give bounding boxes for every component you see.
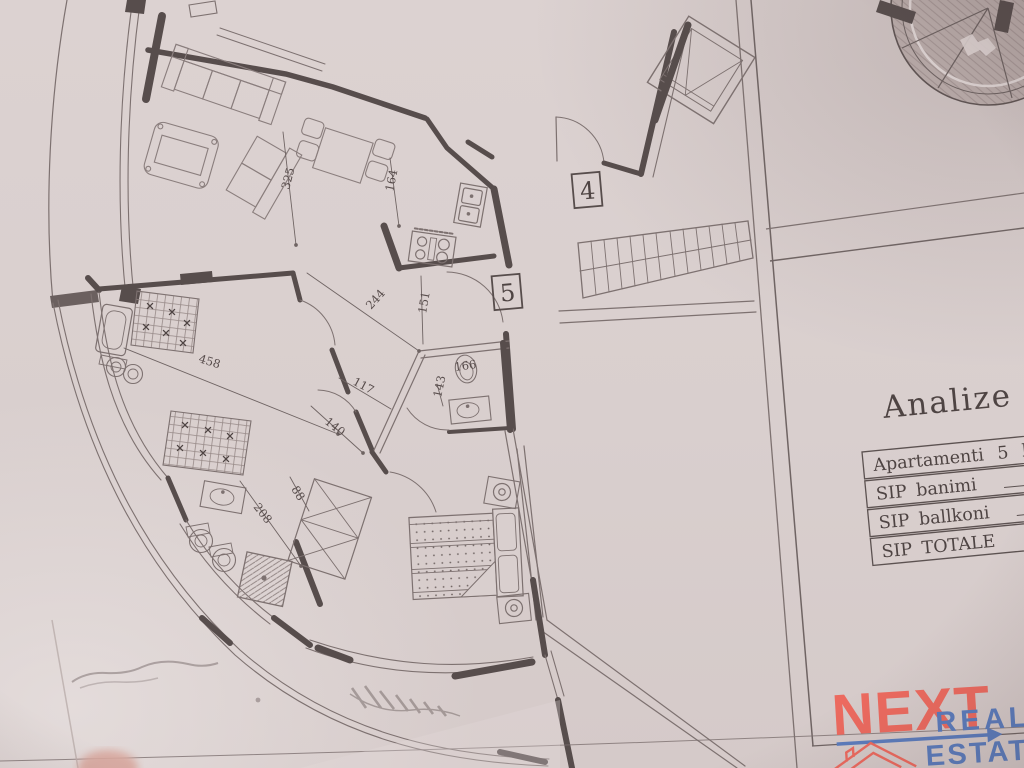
floor-plan-photo: 325 164 244 151 458 117 140 143 166 88 2… [0, 0, 1024, 768]
floor-plan-sheet: 325 164 244 151 458 117 140 143 166 88 2… [0, 0, 1024, 768]
vignette [0, 0, 1024, 768]
